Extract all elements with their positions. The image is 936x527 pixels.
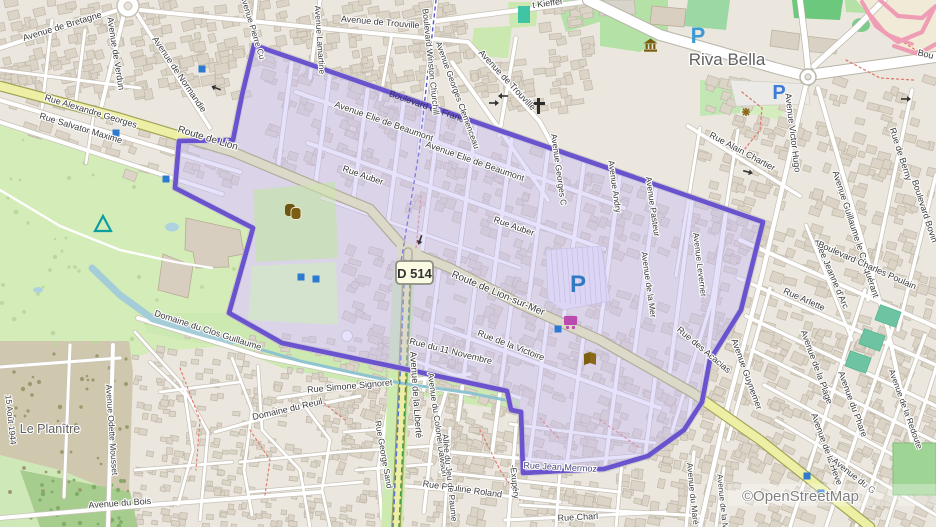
svg-text:Le Planître: Le Planître [20, 422, 81, 436]
svg-text:Rue Charl: Rue Charl [557, 511, 598, 523]
svg-text:Riva Bella: Riva Bella [689, 50, 766, 69]
svg-text:P: P [691, 23, 706, 48]
svg-text:P: P [570, 271, 586, 298]
svg-text:©OpenStreetMap: ©OpenStreetMap [742, 488, 859, 505]
svg-text:D 514: D 514 [397, 266, 432, 281]
